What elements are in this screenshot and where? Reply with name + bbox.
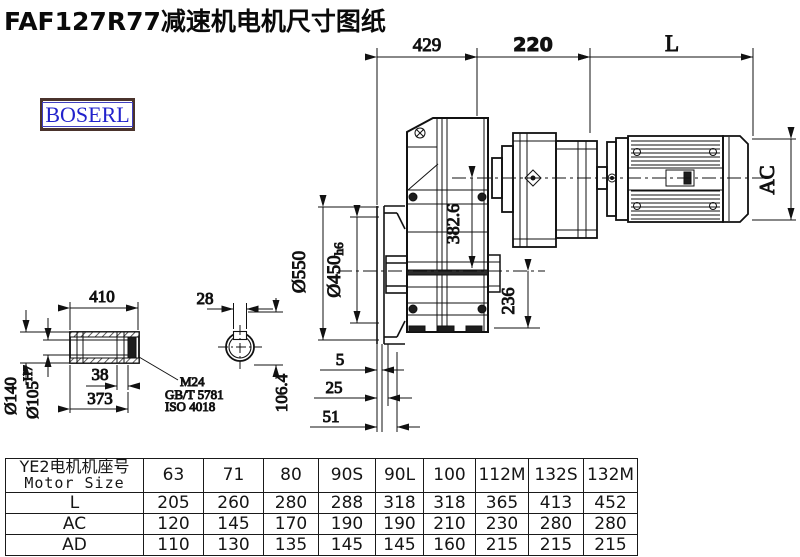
- col-header: 71: [204, 459, 264, 493]
- cell: 110: [144, 534, 204, 555]
- dim-1064: 106.4: [272, 373, 291, 412]
- cell: 130: [204, 534, 264, 555]
- cell: 210: [424, 513, 476, 534]
- technical-drawing: 429 220 L: [0, 0, 800, 460]
- cell: 145: [376, 534, 424, 555]
- dim-373: 373: [87, 389, 113, 408]
- cell: 318: [424, 492, 476, 513]
- dim-28: 28: [197, 289, 214, 308]
- table-row-AD: AD 110 130 135 145 145 160 215 215 215: [6, 534, 638, 555]
- row-label: AC: [6, 513, 144, 534]
- cell: 205: [144, 492, 204, 513]
- dim-429: 429: [413, 35, 442, 56]
- cell: 215: [584, 534, 638, 555]
- dim-L: L: [665, 31, 679, 56]
- cell: 145: [319, 534, 376, 555]
- dim-offset51: 51: [323, 407, 340, 426]
- callout-iso: ISO 4018: [165, 399, 215, 414]
- col-header: 63: [144, 459, 204, 493]
- cell: 170: [264, 513, 319, 534]
- header-motor-size: YE2电机机座号 Motor Size: [6, 459, 144, 493]
- drawing-page: FAF127R77减速机电机尺寸图纸 BOSERL: [0, 0, 800, 557]
- cell: 160: [424, 534, 476, 555]
- dim-220: 220: [513, 34, 553, 56]
- cell: 288: [319, 492, 376, 513]
- dim-flange-spigot: Ø450h6: [324, 242, 346, 298]
- cell: 260: [204, 492, 264, 513]
- dim-ac: AC: [755, 165, 779, 194]
- dim-410: 410: [89, 287, 115, 306]
- motor-fins: [608, 137, 729, 221]
- cell: 318: [376, 492, 424, 513]
- table-row-L: L 205 260 280 288 318 318 365 413 452: [6, 492, 638, 513]
- cell: 215: [529, 534, 584, 555]
- row-label: L: [6, 492, 144, 513]
- col-header: 112M: [476, 459, 529, 493]
- cell: 190: [376, 513, 424, 534]
- col-header: 80: [264, 459, 319, 493]
- dim-shaft-od: Ø140: [1, 377, 20, 415]
- col-header: 100: [424, 459, 476, 493]
- shaft-details: [70, 332, 178, 380]
- cell: 280: [584, 513, 638, 534]
- dim-flange-od: Ø550: [289, 251, 310, 293]
- dim-3826: 382.6: [443, 204, 463, 245]
- col-header: 90S: [319, 459, 376, 493]
- header-motor-size-en: Motor Size: [6, 476, 143, 492]
- dim-offset5: 5: [336, 350, 345, 369]
- cell: 135: [264, 534, 319, 555]
- dim-38: 38: [92, 365, 109, 384]
- cell: 190: [319, 513, 376, 534]
- cell: 120: [144, 513, 204, 534]
- table-header-row: YE2电机机座号 Motor Size 63 71 80 90S 90L 100…: [6, 459, 638, 493]
- table-row-AC: AC 120 145 170 190 190 210 230 280 280: [6, 513, 638, 534]
- cell: 230: [476, 513, 529, 534]
- col-header: 132S: [529, 459, 584, 493]
- dim-bore: Ø105H7: [20, 365, 42, 419]
- dim-offset25: 25: [326, 378, 343, 397]
- top-dimension-lines: [377, 48, 753, 205]
- cell: 215: [476, 534, 529, 555]
- cell: 413: [529, 492, 584, 513]
- r-stage-details: [513, 133, 597, 247]
- cell: 452: [584, 492, 638, 513]
- dim-236: 236: [498, 288, 518, 315]
- row-label: AD: [6, 534, 144, 555]
- cell: 280: [264, 492, 319, 513]
- motor-dimension-table: YE2电机机座号 Motor Size 63 71 80 90S 90L 100…: [5, 458, 638, 556]
- col-header: 90L: [376, 459, 424, 493]
- cell: 145: [204, 513, 264, 534]
- cell: 280: [529, 513, 584, 534]
- cell: 365: [476, 492, 529, 513]
- col-header: 132M: [584, 459, 638, 493]
- flange-outline: [377, 206, 407, 344]
